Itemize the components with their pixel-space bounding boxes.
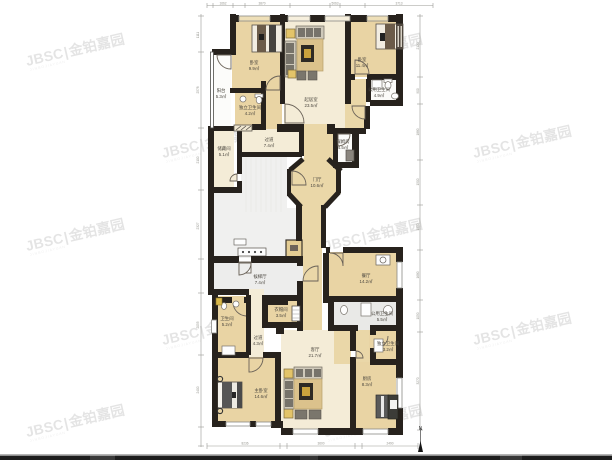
svg-text:门厅: 门厅 [313, 176, 322, 183]
svg-text:公用卫生间: 公用卫生间 [368, 86, 390, 93]
svg-text:8236: 8236 [241, 442, 248, 446]
svg-text:3.2㎡: 3.2㎡ [383, 346, 394, 352]
svg-text:1880: 1880 [416, 128, 420, 135]
svg-text:11.4㎡: 11.4㎡ [356, 62, 369, 68]
svg-text:独立卫生间: 独立卫生间 [377, 340, 399, 347]
svg-text:卧室: 卧室 [250, 59, 259, 66]
svg-text:4.9㎡: 4.9㎡ [374, 92, 385, 98]
svg-text:公用卫生间: 公用卫生间 [371, 310, 393, 317]
svg-text:1050: 1050 [416, 312, 420, 319]
svg-text:2400: 2400 [196, 386, 200, 393]
svg-text:5.3㎡: 5.3㎡ [216, 93, 227, 99]
svg-text:起居室: 起居室 [304, 96, 318, 103]
svg-text:14.2㎡: 14.2㎡ [360, 278, 374, 284]
svg-text:21.7㎡: 21.7㎡ [309, 352, 323, 358]
svg-text:阳台: 阳台 [217, 87, 226, 94]
svg-text:保姆房: 保姆房 [336, 138, 350, 145]
svg-text:5.5㎡: 5.5㎡ [377, 316, 388, 322]
svg-text:7.4㎡: 7.4㎡ [264, 142, 275, 148]
svg-text:3600: 3600 [317, 442, 324, 446]
svg-text:2100: 2100 [196, 156, 200, 163]
svg-text:4.2㎡: 4.2㎡ [245, 110, 256, 116]
svg-text:23.5㎡: 23.5㎡ [305, 102, 319, 108]
svg-text:餐厅: 餐厅 [362, 272, 371, 279]
svg-text:4.3㎡: 4.3㎡ [253, 340, 264, 346]
svg-text:3.5㎡: 3.5㎡ [276, 312, 287, 318]
svg-text:候梯厅: 候梯厅 [253, 273, 267, 280]
svg-text:1662: 1662 [219, 2, 226, 6]
svg-text:7.4㎡: 7.4㎡ [255, 279, 266, 285]
svg-text:5.2㎡: 5.2㎡ [222, 321, 233, 327]
svg-text:卫生间: 卫生间 [220, 315, 233, 322]
svg-text:主卧室: 主卧室 [254, 387, 268, 394]
svg-text:1680: 1680 [416, 271, 420, 278]
svg-text:N: N [419, 426, 423, 432]
svg-text:过道: 过道 [265, 136, 274, 143]
svg-text:1500: 1500 [416, 223, 420, 230]
svg-text:2490: 2490 [386, 442, 393, 446]
svg-text:衣帽间: 衣帽间 [274, 306, 287, 313]
svg-text:2327: 2327 [196, 222, 200, 229]
svg-text:卧室: 卧室 [358, 56, 367, 63]
svg-text:14.6㎡: 14.6㎡ [255, 393, 269, 399]
svg-text:3870: 3870 [258, 2, 265, 6]
svg-text:10.6㎡: 10.6㎡ [311, 182, 325, 188]
svg-text:4.5㎡: 4.5㎡ [338, 144, 349, 150]
svg-text:2055: 2055 [196, 321, 200, 328]
svg-text:独立卫生间: 独立卫生间 [239, 104, 261, 111]
svg-text:客厅: 客厅 [311, 346, 320, 353]
svg-text:8.3㎡: 8.3㎡ [362, 381, 373, 387]
svg-text:900: 900 [416, 88, 420, 94]
svg-text:5063: 5063 [331, 2, 338, 6]
svg-text:2120: 2120 [416, 42, 420, 49]
svg-text:过道: 过道 [254, 334, 263, 341]
svg-text:储藏间: 储藏间 [217, 145, 230, 152]
svg-text:3270: 3270 [416, 377, 420, 384]
svg-text:2578: 2578 [196, 86, 200, 93]
svg-text:9.9㎡: 9.9㎡ [249, 65, 260, 71]
svg-text:3713: 3713 [395, 2, 402, 6]
svg-text:厨房: 厨房 [363, 375, 372, 382]
svg-text:1111: 1111 [196, 32, 200, 39]
svg-text:1500: 1500 [416, 178, 420, 185]
svg-text:5.1㎡: 5.1㎡ [219, 151, 230, 157]
